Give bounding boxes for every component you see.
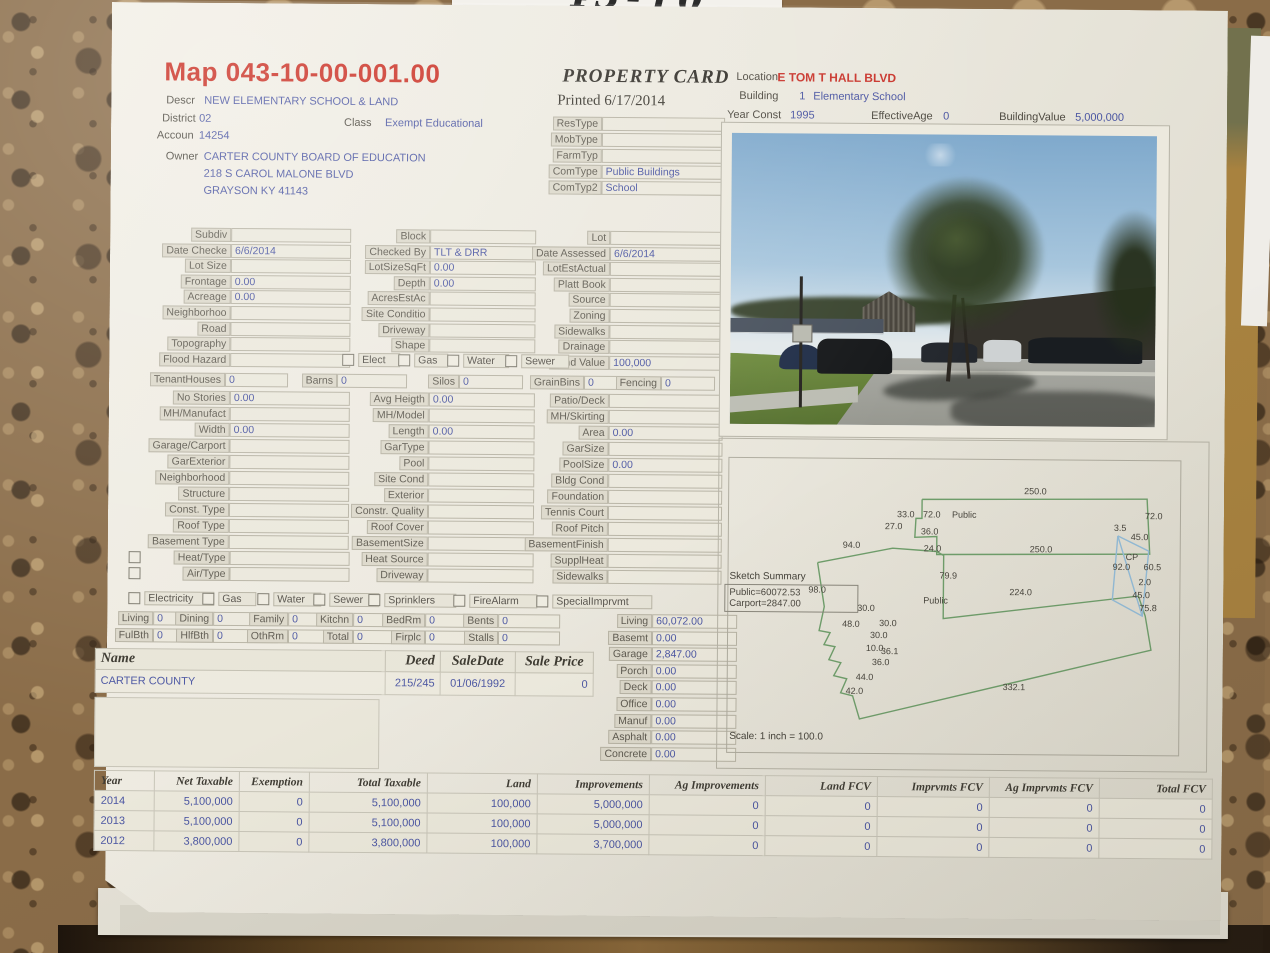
sketch-dim-36-0: 36.0 xyxy=(872,657,890,667)
field-area-label: Area xyxy=(578,426,608,440)
owner-address-line2: GRAYSON KY 41143 xyxy=(203,185,308,198)
field-driveway-label: Driveway xyxy=(376,568,427,582)
sketch-dim-250-0: 250.0 xyxy=(1030,544,1053,554)
field-tenanthouses-value: 0 xyxy=(225,373,288,387)
field-subdiv: Subdiv xyxy=(131,227,351,243)
field-date-assessed-label: Date Assessed xyxy=(532,246,610,261)
utility-elect: Elect xyxy=(342,353,400,367)
field-concrete-label: Concrete xyxy=(600,747,651,761)
field-mh-model-label: MH/Model xyxy=(373,408,429,422)
field-pool-label: Pool xyxy=(399,456,428,470)
assess-header-total-fcv: Total FCV xyxy=(1099,778,1212,799)
field-area: Area0.00 xyxy=(517,425,723,441)
field-zoning: Zoning xyxy=(517,308,723,324)
assess-cell: 0 xyxy=(765,816,877,837)
service-gas-checkbox xyxy=(202,593,214,605)
field-topography: Topography xyxy=(130,336,350,352)
field-tenanthouses-label: TenantHouses xyxy=(150,372,225,387)
assess-header-year: Year xyxy=(94,770,154,790)
field-basementsize-label: BasementSize xyxy=(352,536,428,551)
utility-elect-label: Elect xyxy=(358,353,400,367)
building-number: 1 xyxy=(799,90,805,102)
service-sprinklers-label: Sprinklers xyxy=(384,593,456,608)
field-fencing-value: 0 xyxy=(661,376,715,390)
sales-header-saledate: SaleDate xyxy=(440,651,515,673)
sketch-summary-title: Sketch Summary xyxy=(729,571,805,583)
field-bldg-cond-value xyxy=(608,474,722,489)
field-lotestactual: LotEstActual xyxy=(518,261,724,277)
field-platt-book-value xyxy=(610,278,724,293)
field-mh-skirting-label: MH/Skirting xyxy=(546,409,608,423)
service-gas: Gas xyxy=(202,592,256,606)
assess-cell: 3,700,000 xyxy=(537,834,649,855)
location-value: E TOM T HALL BLVD xyxy=(777,70,896,85)
field-site-cond: Site Cond xyxy=(331,472,534,488)
property-card-sheet: Map 043-10-00-001.00 PROPERTY CARD Print… xyxy=(105,2,1228,921)
property-photo xyxy=(730,133,1157,427)
field-acresestac-label: AcresEstAc xyxy=(367,291,429,305)
service-water: Water xyxy=(257,592,321,607)
field-living: Living60,072.00 xyxy=(593,614,737,629)
sketch-summary-box: Public=60072.53 Carport=2847.00 xyxy=(724,584,858,613)
field-basementfinish: BasementFinish xyxy=(516,537,722,553)
field-platt-book: Platt Book xyxy=(518,277,724,293)
utility-sewer-label: Sewer xyxy=(521,354,569,368)
assess-cell: 0 xyxy=(765,796,877,817)
field-date-assessed-value: 6/6/2014 xyxy=(610,247,724,262)
field-basement-type: Basement Type xyxy=(129,534,349,550)
field-othrm-label: OthRm xyxy=(247,629,288,643)
sketch-dim-33-0: 33.0 xyxy=(897,509,915,519)
class-label: Class xyxy=(344,117,372,129)
field-tennis-court: Tennis Court xyxy=(516,505,722,521)
field-restype-value xyxy=(602,117,725,132)
assess-cell: 0 xyxy=(877,837,989,858)
sketch-dim-224-0: 224.0 xyxy=(1009,587,1032,597)
field-supplheat-label: SupplHeat xyxy=(551,553,608,567)
service-firealarm: FireAlarm xyxy=(453,594,537,609)
field-zoning-value xyxy=(609,309,723,324)
field-fencing: Fencing0 xyxy=(611,376,715,391)
sketch-dim-27-0: 27.0 xyxy=(885,521,903,531)
field-comtyp2-value: School xyxy=(602,181,725,196)
field-tennis-court-label: Tennis Court xyxy=(541,505,608,520)
utility-water-label: Water xyxy=(463,354,509,368)
assess-cell: 3,800,000 xyxy=(309,832,427,853)
field-lotestactual-value xyxy=(610,262,724,277)
field-mh-model: MH/Model xyxy=(332,408,535,424)
field-constr-quality: Constr. Quality xyxy=(331,504,534,520)
effective-age-value: 0 xyxy=(943,111,949,123)
field-mh-skirting-value xyxy=(609,410,723,425)
field-road-label: Road xyxy=(197,321,230,335)
field-flood-hazard-value xyxy=(230,353,350,368)
field-mobtype: MobType xyxy=(547,132,725,147)
field-supplheat-value xyxy=(608,554,722,569)
field-roof-pitch-label: Roof Pitch xyxy=(551,521,608,535)
field-concrete: Concrete0.00 xyxy=(592,747,736,762)
field-farmtyp-value xyxy=(602,149,725,164)
field-air-type: Air/Type xyxy=(128,566,349,582)
field-air-type-checkbox xyxy=(128,567,140,579)
field-lot: Lot xyxy=(518,230,724,246)
field-avg-heigth-label: Avg Heigth xyxy=(370,392,429,406)
field-pool: Pool xyxy=(331,456,534,472)
service-firealarm-checkbox xyxy=(453,595,465,607)
photo-road-shadow xyxy=(951,391,1157,428)
field-bents-value: 0 xyxy=(498,614,560,628)
field-mobtype-value xyxy=(602,133,725,148)
building-label: Building xyxy=(739,90,778,102)
field-grainbins-label: GrainBins xyxy=(530,375,584,389)
assess-cell: 0 xyxy=(877,817,989,838)
assess-header-land: Land xyxy=(427,773,537,794)
district-label: District xyxy=(162,112,196,124)
field-lotsizesqft: LotSizeSqFt0.00 xyxy=(333,260,536,276)
field-structure: Structure xyxy=(129,486,349,502)
sketch-dim-2-0: 2.0 xyxy=(1138,577,1151,587)
field-kitchn-label: Kitchn xyxy=(316,613,353,627)
sketch-summary-line-carport: Carport=2847.00 xyxy=(729,598,853,610)
assess-cell: 0 xyxy=(989,797,1099,818)
field-lotsizesqft-label: LotSizeSqFt xyxy=(365,260,430,275)
photo-tree-canopy-highlight xyxy=(909,198,1003,280)
service-electricity-checkbox xyxy=(128,592,140,604)
sketch-dim-44-0: 44.0 xyxy=(856,672,874,682)
assess-cell: 5,100,000 xyxy=(154,791,239,812)
assess-cell: 2014 xyxy=(94,790,154,810)
assess-cell: 5,100,000 xyxy=(309,792,427,813)
field-poolsize-value: 0.00 xyxy=(608,458,722,473)
field-heat-type: Heat/Type xyxy=(129,550,350,566)
field-width: Width0.00 xyxy=(130,422,350,438)
assess-cell: 5,000,000 xyxy=(537,814,649,835)
field-patio-deck-value xyxy=(609,394,723,409)
field-comtype: ComTypePublic Buildings xyxy=(547,164,725,179)
field-fulbth-label: FulBth xyxy=(115,628,153,642)
field-bldg-cond: Bldg Cond xyxy=(516,473,722,489)
field-garage-carport-label: Garage/Carport xyxy=(149,438,230,453)
field-checked-by-label: Checked By xyxy=(365,245,430,260)
field-basement-type-label: Basement Type xyxy=(148,534,229,549)
field-driveway: Driveway xyxy=(332,322,535,338)
field-date-assessed: Date Assessed6/6/2014 xyxy=(518,246,724,262)
field-stalls-label: Stalls xyxy=(464,631,498,645)
field-gartype: GarType xyxy=(331,440,534,456)
utility-gas-checkbox xyxy=(398,354,410,366)
sketch-dim-94-0: 94.0 xyxy=(843,540,861,550)
field-restype-label: ResType xyxy=(553,116,603,130)
field-drainage: Drainage xyxy=(517,339,723,355)
service-gas-label: Gas xyxy=(218,592,256,606)
field-heat-type-label: Heat/Type xyxy=(174,551,230,565)
field-poolsize: PoolSize0.00 xyxy=(516,457,722,473)
field-frontage-label: Frontage xyxy=(181,274,231,288)
field-barns-value: 0 xyxy=(337,374,407,389)
field-flood-hazard-label: Flood Hazard xyxy=(159,352,230,367)
field-patio-deck-label: Patio/Deck xyxy=(550,393,609,407)
field-structure-label: Structure xyxy=(178,487,229,501)
field-garexterior-label: GarExterior xyxy=(168,454,230,468)
field-sidewalks-value xyxy=(609,325,723,340)
field-garsize-label: GarSize xyxy=(563,442,609,456)
field-garage-label: Garage xyxy=(609,647,652,661)
field-asphalt-label: Asphalt xyxy=(608,730,651,744)
field-comtyp2: ComTyp2School xyxy=(547,180,725,195)
sketch-dim-75-8: 75.8 xyxy=(1139,603,1157,613)
field-subdiv-label: Subdiv xyxy=(191,228,231,242)
field-acreage-label: Acreage xyxy=(184,290,231,304)
photo-right-tree xyxy=(1091,208,1157,360)
sketch-dim-79-9: 79.9 xyxy=(939,571,957,581)
field-office-label: Office xyxy=(616,697,651,711)
assess-cell: 0 xyxy=(765,836,877,857)
field-platt-book-label: Platt Book xyxy=(554,277,610,291)
assess-cell: 0 xyxy=(1099,838,1212,859)
field-drainage-value xyxy=(609,340,723,355)
field-sidewalks-value xyxy=(607,570,721,585)
field-driveway-label: Driveway xyxy=(378,323,429,337)
field-family-label: Family xyxy=(249,612,288,626)
field-basementfinish-label: BasementFinish xyxy=(524,537,607,552)
field-supplheat: SupplHeat xyxy=(516,553,722,569)
field-foundation: Foundation xyxy=(516,489,722,505)
field-foundation-label: Foundation xyxy=(548,489,609,503)
service-specialimprvmt-label: SpecialImprvmt xyxy=(552,594,652,609)
field-basemt: Basemt0.00 xyxy=(593,630,737,645)
field-sidewalks: Sidewalks xyxy=(515,569,721,585)
sketch-dim-30-0: 30.0 xyxy=(870,630,888,640)
assess-cell: 100,000 xyxy=(427,833,537,854)
sketch-dim-332-1: 332.1 xyxy=(1003,682,1026,692)
sketch-dim-45-0: 45.0 xyxy=(1131,532,1149,542)
service-firealarm-label: FireAlarm xyxy=(469,594,537,609)
assess-cell: 3,800,000 xyxy=(154,831,239,852)
field-comtype-value: Public Buildings xyxy=(602,165,725,180)
field-foundation-value xyxy=(608,490,722,505)
field-area-value: 0.00 xyxy=(609,426,723,441)
field-bldg-cond-label: Bldg Cond xyxy=(551,473,608,487)
field-porch-label: Porch xyxy=(616,664,652,678)
field-sidewalks-label: Sidewalks xyxy=(554,324,609,338)
sketch-scale-note: Scale: 1 inch = 100.0 xyxy=(729,731,823,743)
field-road: Road xyxy=(130,321,350,337)
sketch-dim-public: Public xyxy=(952,510,977,520)
property-photo-frame xyxy=(719,122,1170,441)
assess-cell: 5,100,000 xyxy=(309,812,427,833)
field-site-cond-label: Site Cond xyxy=(374,472,428,486)
assess-cell: 0 xyxy=(649,815,765,836)
field-silos-label: Silos xyxy=(428,374,459,388)
field-poolsize-label: PoolSize xyxy=(559,458,609,472)
utility-water: Water xyxy=(447,354,509,368)
year-const-label: Year Const xyxy=(727,109,781,121)
field-lot-size-label: Lot Size xyxy=(185,259,231,273)
field-checked-by: Checked ByTLT & DRR xyxy=(333,244,536,260)
assess-cell: 2013 xyxy=(94,810,154,830)
sketch-dim-3-5: 3.5 xyxy=(1114,523,1127,533)
assess-header-total-taxable: Total Taxable xyxy=(309,772,427,793)
field-living-label: Living xyxy=(617,614,653,628)
field-date-checke-label: Date Checke xyxy=(162,243,231,258)
field-garage: Garage2,847.00 xyxy=(593,647,737,662)
assess-header-ag-improvements: Ag Improvements xyxy=(649,775,765,796)
assess-cell: 5,000,000 xyxy=(537,794,649,815)
field-comtype-label: ComType xyxy=(549,164,602,178)
field-flood-hazard: Flood Hazard xyxy=(130,352,350,368)
field-roof-type-label: Roof Type xyxy=(173,518,229,532)
sales-empty-box xyxy=(94,697,380,769)
building-outline-lower xyxy=(816,548,1151,722)
building-value-label: BuildingValue xyxy=(999,111,1066,124)
field-avg-heigth: Avg Heigth0.00 xyxy=(332,392,535,408)
field-neighborhood-label: Neighborhood xyxy=(155,470,229,485)
assess-cell: 0 xyxy=(989,837,1099,858)
service-sprinklers: Sprinklers xyxy=(368,593,456,608)
assess-cell: 0 xyxy=(1099,798,1212,819)
field-neighborhoo: Neighborhoo xyxy=(131,305,351,321)
utility-sewer: Sewer xyxy=(505,354,569,369)
assess-cell: 5,100,000 xyxy=(154,811,239,832)
field-shape: Shape xyxy=(332,338,535,354)
sketch-dim-36-0: 36.0 xyxy=(921,526,939,536)
field-restype: ResType xyxy=(547,116,725,131)
field-mobtype-label: MobType xyxy=(551,132,602,146)
field-heat-source: Heat Source xyxy=(331,552,534,568)
field-site-conditio: Site Conditio xyxy=(333,307,536,323)
assess-cell: 0 xyxy=(649,795,765,816)
field-garsize-value xyxy=(608,442,722,457)
field-roof-type: Roof Type xyxy=(129,518,349,534)
field-manuf-label: Manuf xyxy=(614,714,651,728)
owner-label: Owner xyxy=(166,150,198,162)
field-source: Source xyxy=(518,293,724,309)
field-fencing-label: Fencing xyxy=(616,376,661,390)
field-basementsize: BasementSize xyxy=(331,536,534,552)
field-frontage: Frontage0.00 xyxy=(131,274,351,290)
field-acresestac: AcresEstAc xyxy=(333,291,536,307)
field-roof-cover-label: Roof Cover xyxy=(367,520,428,534)
field-firplc-label: Firplc xyxy=(391,630,425,644)
sketch-dim-30-0: 30.0 xyxy=(879,618,897,628)
card-title: PROPERTY CARD xyxy=(562,66,729,89)
field-heat-type-checkbox xyxy=(129,551,141,563)
assess-cell: 0 xyxy=(239,812,309,833)
field-hlfbth-label: HlfBth xyxy=(176,629,213,643)
field-barns-label: Barns xyxy=(302,374,338,388)
field-drainage-label: Drainage xyxy=(559,340,610,354)
field-silos-value: 0 xyxy=(459,375,523,390)
field-depth-label: Depth xyxy=(394,276,430,290)
field-roof-cover: Roof Cover xyxy=(331,520,534,536)
field-bents: Bents0 xyxy=(461,614,560,629)
field-const-type-label: Const. Type xyxy=(165,502,229,517)
field-dining-label: Dining xyxy=(175,612,213,626)
field-garsize: GarSize xyxy=(516,441,722,457)
field-roof-pitch: Roof Pitch xyxy=(516,521,722,537)
photo-car-suv xyxy=(817,339,892,374)
sales-cell: 0 xyxy=(515,673,593,697)
assess-cell: 0 xyxy=(877,797,989,818)
service-sprinklers-checkbox xyxy=(368,594,380,606)
field-deck-label: Deck xyxy=(620,680,652,694)
field-constr-quality-label: Constr. Quality xyxy=(351,504,428,519)
sales-cell: 01/06/1992 xyxy=(440,672,515,696)
field-air-type-label: Air/Type xyxy=(183,567,230,581)
sales-header-sale-price: Sale Price xyxy=(515,652,593,674)
sketch-dim-48-0: 48.0 xyxy=(842,619,860,629)
field-mh-manufact: MH/Manufact xyxy=(130,406,350,422)
field-bedrm-label: BedRm xyxy=(382,613,425,627)
descr-label: Descr xyxy=(166,94,195,106)
field-patio-deck: Patio/Deck xyxy=(517,393,723,409)
field-garage-carport: Garage/Carport xyxy=(129,438,349,454)
year-const-value: 1995 xyxy=(790,109,815,121)
field-stalls-value: 0 xyxy=(498,631,560,645)
sketch-dim-42-0: 42.0 xyxy=(846,686,864,696)
assess-cell: 0 xyxy=(239,832,309,853)
assess-header-ag-imprvmts-fcv: Ag Imprvmts FCV xyxy=(989,777,1099,798)
field-block-label: Block xyxy=(396,229,430,243)
service-water-checkbox xyxy=(257,593,269,605)
field-shape-label: Shape xyxy=(391,338,429,352)
assess-header-exemption: Exemption xyxy=(239,772,309,793)
building-name: Elementary School xyxy=(813,91,905,104)
sketch-dim-92-0: 92.0 xyxy=(1113,562,1131,572)
field-const-type: Const. Type xyxy=(129,502,349,518)
field-lot-value xyxy=(610,231,724,246)
field-source-label: Source xyxy=(568,293,609,307)
photo-car-white xyxy=(983,340,1021,362)
field-site-conditio-label: Site Conditio xyxy=(362,307,430,322)
field-living-label: Living xyxy=(118,611,154,625)
field-topography-label: Topography xyxy=(167,337,230,351)
sketch-dim-24-0: 24.0 xyxy=(924,543,942,553)
field-exterior: Exterior xyxy=(331,488,534,504)
assess-header-imprvmts-fcv: Imprvmts FCV xyxy=(877,777,989,798)
field-sidewalks: Sidewalks xyxy=(517,324,723,340)
field-mh-skirting: MH/Skirting xyxy=(517,409,723,425)
map-number-heading: Map 043-10-00-001.00 xyxy=(164,56,440,89)
field-land-value-value: 100,000 xyxy=(609,356,723,371)
sales-header-name: Name xyxy=(95,648,385,671)
utility-gas: Gas xyxy=(398,353,448,367)
sales-header-deed: Deed xyxy=(385,651,440,672)
field-porch: Porch0.00 xyxy=(593,664,737,679)
field-lot-size: Lot Size xyxy=(131,258,351,274)
assess-cell: 100,000 xyxy=(427,813,537,834)
field-depth: Depth0.00 xyxy=(333,276,536,292)
service-specialimprvmt: SpecialImprvmt xyxy=(536,594,652,609)
field-bents-label: Bents xyxy=(463,614,498,628)
field-width-label: Width xyxy=(195,423,230,437)
sketch-dim-30-0: 30.0 xyxy=(857,603,875,613)
field-comtyp2-label: ComTyp2 xyxy=(549,180,602,194)
effective-age-label: EffectiveAge xyxy=(871,110,933,122)
field-basemt-label: Basemt xyxy=(608,631,652,645)
utility-gas-label: Gas xyxy=(414,353,448,367)
field-garexterior: GarExterior xyxy=(129,454,349,470)
field-date-checke: Date Checke6/6/2014 xyxy=(131,243,351,259)
utility-sewer-checkbox xyxy=(505,355,517,367)
field-neighborhoo-label: Neighborhoo xyxy=(162,305,230,320)
district-value: 02 xyxy=(199,113,211,125)
assessment-table: YearNet TaxableExemptionTotal TaxableLan… xyxy=(93,770,1213,860)
field-acreage: Acreage0.00 xyxy=(131,290,351,306)
field-barns: Barns0 xyxy=(285,373,407,388)
card-content: Map 043-10-00-001.00 PROPERTY CARD Print… xyxy=(0,0,1270,953)
field-stalls: Stalls0 xyxy=(461,631,560,646)
